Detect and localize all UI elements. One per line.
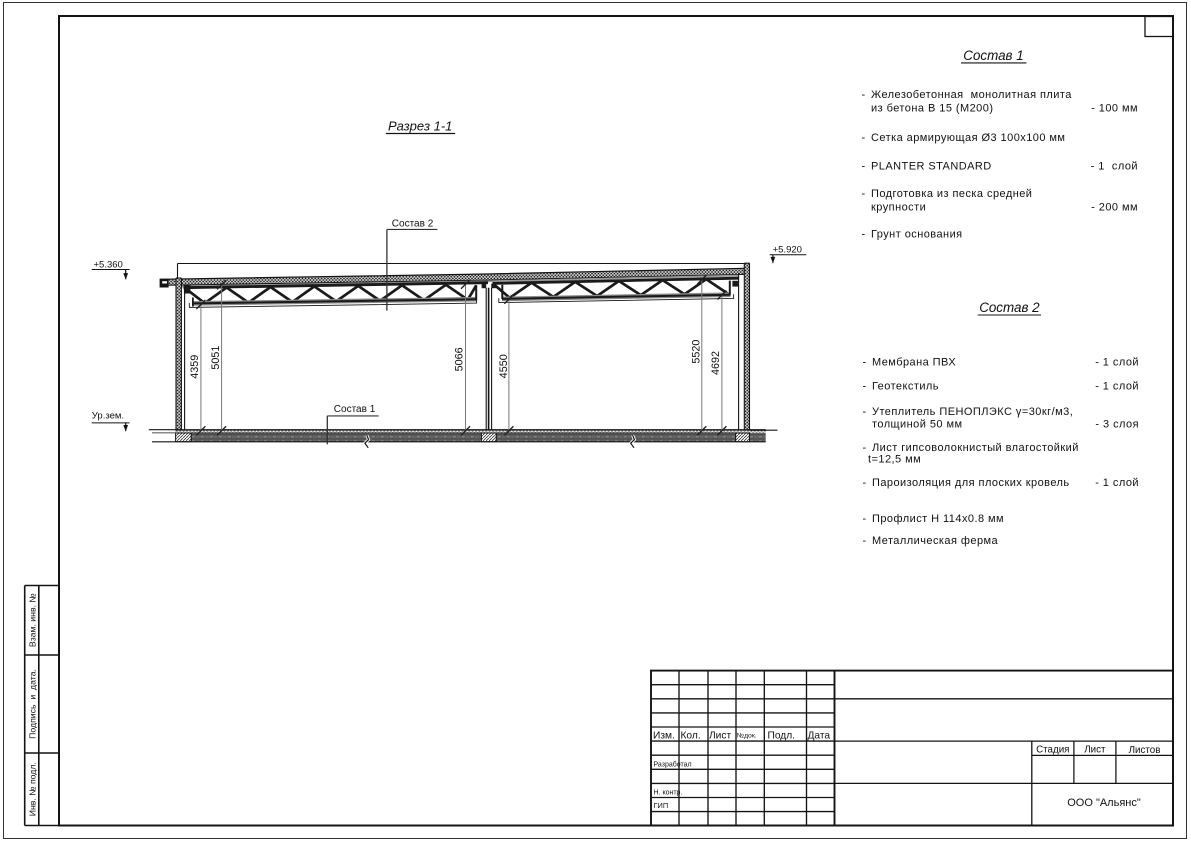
svg-text:Подл.: Подл. xyxy=(768,731,795,742)
svg-text:Профлист Н 114х0.8 мм: Профлист Н 114х0.8 мм xyxy=(872,513,1004,525)
svg-text:ГИП: ГИП xyxy=(654,801,669,810)
svg-text:Подготовка из песка средней: Подготовка из песка средней xyxy=(871,188,1032,200)
svg-text:-: - xyxy=(862,188,866,200)
svg-text:-: - xyxy=(863,535,867,547)
svg-text:Подпись и дата.: Подпись и дата. xyxy=(27,669,37,739)
svg-text:5520: 5520 xyxy=(690,340,702,364)
svg-text:- 1 слой: - 1 слой xyxy=(1091,160,1138,172)
svg-text:-: - xyxy=(862,89,866,101)
svg-text:№док.: №док. xyxy=(737,733,757,740)
svg-text:-: - xyxy=(863,442,867,454)
svg-text:-: - xyxy=(862,132,866,144)
svg-text:Металлическая ферма: Металлическая ферма xyxy=(872,535,999,547)
svg-text:из бетона В 15 (М200): из бетона В 15 (М200) xyxy=(871,102,993,114)
svg-text:- 200 мм: - 200 мм xyxy=(1091,201,1138,213)
svg-text:ООО "Альянс": ООО "Альянс" xyxy=(1067,797,1141,809)
svg-text:Пароизоляция для плоских крове: Пароизоляция для плоских кровель xyxy=(872,477,1070,489)
svg-text:толщиной 50 мм: толщиной 50 мм xyxy=(872,419,963,431)
svg-text:+5.920: +5.920 xyxy=(773,244,802,255)
svg-text:Утеплитель ПЕНОПЛЭКС γ=30кг/м3: Утеплитель ПЕНОПЛЭКС γ=30кг/м3, xyxy=(872,406,1073,418)
svg-text:Мембрана ПВХ: Мембрана ПВХ xyxy=(872,357,956,369)
svg-text:Разрез 1-1: Разрез 1-1 xyxy=(388,118,452,133)
svg-text:Взам. инв. №: Взам. инв. № xyxy=(27,593,37,647)
svg-text:Состав 2: Состав 2 xyxy=(392,219,434,230)
svg-text:PLANTER STANDARD: PLANTER STANDARD xyxy=(871,160,992,172)
svg-text:- 1 слой: - 1 слой xyxy=(1095,357,1139,369)
svg-text:Листов: Листов xyxy=(1129,745,1161,756)
svg-text:- 100 мм: - 100 мм xyxy=(1091,102,1138,114)
svg-text:4550: 4550 xyxy=(498,354,510,378)
svg-text:Железобетонная монолитная пли: Железобетонная монолитная плита xyxy=(871,89,1072,101)
svg-text:Кол.: Кол. xyxy=(681,731,701,742)
svg-text:Инв. № подл.: Инв. № подл. xyxy=(27,762,37,816)
svg-text:-: - xyxy=(862,228,866,240)
svg-text:5051: 5051 xyxy=(210,346,222,370)
svg-text:-: - xyxy=(863,406,867,418)
svg-text:- 1 слой: - 1 слой xyxy=(1095,380,1139,392)
svg-text:- 1 слой: - 1 слой xyxy=(1095,477,1139,489)
svg-text:Стадия: Стадия xyxy=(1036,744,1069,755)
svg-text:t=12,5 мм: t=12,5 мм xyxy=(868,454,921,466)
svg-text:Н. контр.: Н. контр. xyxy=(654,789,683,796)
svg-text:-: - xyxy=(863,380,867,392)
svg-text:Дата: Дата xyxy=(808,731,831,742)
svg-text:Лист гипсоволокнистый влагосто: Лист гипсоволокнистый влагостойкий xyxy=(872,442,1079,454)
svg-text:Геотекстиль: Геотекстиль xyxy=(872,380,939,392)
svg-text:-: - xyxy=(863,357,867,369)
svg-text:Состав 2: Состав 2 xyxy=(979,300,1040,315)
svg-text:Ур.зем.: Ур.зем. xyxy=(92,410,124,421)
svg-text:4359: 4359 xyxy=(189,355,201,379)
svg-text:Грунт основания: Грунт основания xyxy=(871,228,963,240)
svg-text:+5.360: +5.360 xyxy=(94,259,123,270)
svg-text:Лист: Лист xyxy=(1084,744,1106,755)
svg-text:крупности: крупности xyxy=(871,201,926,213)
svg-text:Разработал: Разработал xyxy=(654,760,692,768)
svg-text:Состав 1: Состав 1 xyxy=(963,48,1023,63)
svg-text:Сетка армирующая Ø3 100х100 мм: Сетка армирующая Ø3 100х100 мм xyxy=(871,132,1065,144)
svg-text:Изм.: Изм. xyxy=(653,731,675,742)
svg-text:5066: 5066 xyxy=(453,347,465,371)
svg-text:Лист: Лист xyxy=(709,731,731,742)
svg-text:-: - xyxy=(863,477,867,489)
svg-text:Состав 1: Состав 1 xyxy=(334,404,376,415)
svg-text:-: - xyxy=(862,160,866,172)
svg-text:4692: 4692 xyxy=(710,351,722,375)
svg-text:- 3 слоя: - 3 слоя xyxy=(1095,419,1139,431)
svg-text:-: - xyxy=(863,513,867,525)
